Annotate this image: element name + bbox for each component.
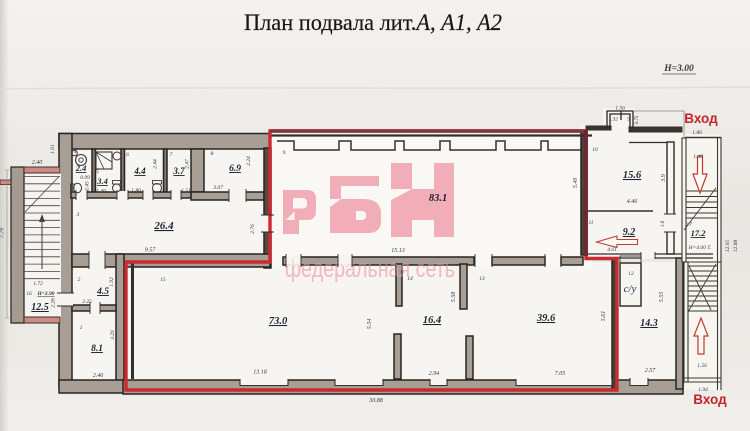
svg-text:11: 11 — [588, 220, 593, 226]
svg-text:2: 2 — [78, 277, 81, 283]
svg-text:2.28: 2.28 — [51, 298, 57, 308]
svg-text:Вход: Вход — [693, 392, 727, 407]
svg-text:6.9: 6.9 — [229, 164, 241, 174]
svg-text:39.6: 39.6 — [536, 313, 556, 324]
svg-text:6: 6 — [126, 152, 129, 158]
svg-text:1.72: 1.72 — [33, 281, 43, 287]
svg-text:7.79: 7.79 — [0, 228, 6, 239]
svg-text:1.56: 1.56 — [697, 363, 707, 369]
svg-text:9.2: 9.2 — [623, 227, 636, 238]
svg-text:3: 3 — [76, 212, 80, 218]
svg-text:12.88: 12.88 — [733, 240, 739, 253]
svg-text:12.05: 12.05 — [725, 240, 731, 253]
svg-text:4.5: 4.5 — [96, 287, 109, 297]
svg-text:3.9: 3.9 — [661, 174, 667, 183]
svg-text:15.6: 15.6 — [623, 170, 642, 181]
svg-text:Н=3.00: Н=3.00 — [663, 64, 694, 74]
svg-text:1.8: 1.8 — [661, 220, 666, 227]
svg-text:14: 14 — [407, 275, 413, 282]
svg-text:7.05: 7.05 — [555, 371, 566, 377]
svg-text:7: 7 — [170, 152, 173, 158]
svg-text:1.80: 1.80 — [131, 188, 141, 194]
svg-text:1.56: 1.56 — [615, 106, 625, 112]
svg-text:5.61: 5.61 — [601, 311, 607, 322]
svg-text:3.7: 3.7 — [172, 166, 185, 176]
svg-text:2.4: 2.4 — [75, 163, 87, 173]
svg-text:1.92: 1.92 — [109, 277, 115, 287]
svg-text:Вход: Вход — [684, 111, 718, 126]
svg-text:73.0: 73.0 — [269, 316, 288, 327]
svg-text:2.57: 2.57 — [645, 368, 657, 374]
svg-text:26.4: 26.4 — [153, 220, 174, 232]
svg-text:15.13: 15.13 — [391, 248, 405, 254]
svg-text:13: 13 — [479, 276, 485, 282]
svg-text:План подвала лит.А, А1, А2: План подвала лит.А, А1, А2 — [244, 10, 502, 36]
svg-text:10: 10 — [592, 147, 598, 153]
svg-text:1.94: 1.94 — [698, 386, 708, 393]
svg-text:13.18: 13.18 — [253, 370, 267, 376]
svg-text:1.61: 1.61 — [50, 144, 56, 154]
svg-text:федеральная сеть: федеральная сеть — [285, 255, 455, 283]
svg-text:30.88: 30.88 — [368, 398, 383, 404]
svg-text:9: 9 — [283, 150, 286, 156]
svg-text:1: 1 — [80, 325, 83, 331]
svg-text:1.40: 1.40 — [96, 188, 106, 195]
svg-text:Н=2.90: Н=2.90 — [36, 291, 54, 297]
svg-text:0.75: 0.75 — [635, 115, 640, 124]
svg-text:1.86: 1.86 — [692, 130, 702, 136]
svg-text:2.46: 2.46 — [93, 372, 104, 379]
svg-text:5: 5 — [96, 169, 99, 175]
svg-text:16: 16 — [26, 291, 32, 297]
svg-text:8.1: 8.1 — [91, 344, 103, 354]
svg-text:2.24: 2.24 — [245, 156, 252, 166]
svg-text:2.25: 2.25 — [82, 299, 92, 305]
svg-text:15: 15 — [160, 277, 166, 283]
svg-text:3.07: 3.07 — [212, 185, 223, 191]
svg-text:5.55: 5.55 — [659, 292, 665, 303]
svg-text:14.3: 14.3 — [640, 318, 658, 329]
svg-text:5: 5 — [627, 117, 630, 123]
svg-text:2.45: 2.45 — [84, 181, 91, 191]
svg-text:2.40: 2.40 — [32, 159, 43, 166]
svg-text:4.46: 4.46 — [627, 198, 638, 205]
svg-text:5.54: 5.54 — [366, 319, 373, 330]
svg-text:3.29: 3.29 — [110, 330, 116, 341]
svg-text:2.94: 2.94 — [429, 370, 440, 377]
svg-text:1.32: 1.32 — [608, 117, 618, 123]
svg-text:4.61: 4.61 — [607, 246, 617, 253]
svg-text:17.2: 17.2 — [691, 228, 707, 238]
svg-text:5.49: 5.49 — [572, 178, 579, 189]
svg-text:9.57: 9.57 — [145, 248, 157, 254]
svg-text:4: 4 — [74, 148, 77, 155]
svg-text:0.99: 0.99 — [80, 175, 90, 181]
svg-text:5.58: 5.58 — [451, 292, 457, 303]
svg-text:2.47: 2.47 — [184, 159, 191, 169]
svg-text:2.44: 2.44 — [152, 159, 159, 169]
svg-text:1.51: 1.51 — [181, 188, 191, 194]
svg-text:3.4: 3.4 — [96, 176, 108, 186]
svg-text:16.4: 16.4 — [423, 315, 441, 326]
svg-text:1.48: 1.48 — [693, 153, 703, 160]
svg-text:с/у: с/у — [624, 283, 637, 295]
svg-text:Н=4.60 Т.: Н=4.60 Т. — [688, 244, 712, 251]
svg-text:4.4: 4.4 — [133, 166, 146, 176]
svg-text:12: 12 — [628, 271, 634, 277]
svg-text:8: 8 — [211, 151, 214, 157]
svg-text:83.1: 83.1 — [429, 193, 447, 204]
svg-text:12.5: 12.5 — [31, 302, 49, 313]
svg-text:2.76: 2.76 — [250, 224, 256, 234]
